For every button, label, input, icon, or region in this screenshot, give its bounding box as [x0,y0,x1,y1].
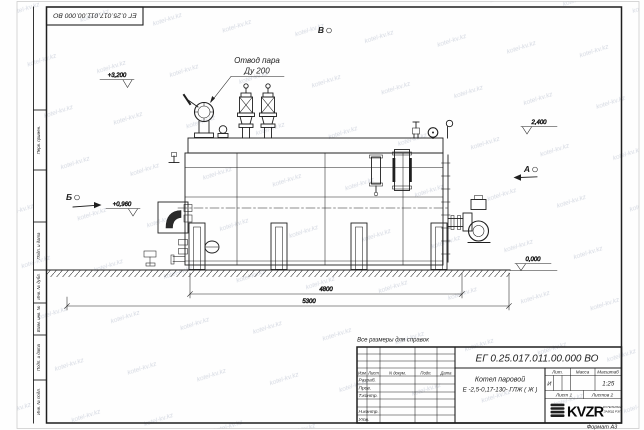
row-label-nkontr: Н.контр. [359,409,379,415]
mass-header: Масса [576,370,590,375]
sidebar-label-perv-primen: Перв. примен. [36,126,41,155]
row-label-razrab: Разраб. [359,378,376,384]
sidebar-label-inv-podl: Инв. № подл. [36,388,41,415]
dim-label-4800: 4800 [319,287,333,293]
sidebar-label-podp-data-1: Подп. и дата [36,232,41,260]
sidebar-label-podp-data-2: Подп. и дата [36,343,41,371]
format-note: Формат А3 [587,425,618,430]
scale-header: Масштаб [597,370,619,375]
ground-line [47,270,557,277]
boiler-assembly-drawing: kotel-kv.kz kotel-kv.kz ЕГ 0.25.017.011.… [0,0,644,430]
row-label-utv: Утв. [359,417,370,423]
drawing-sheet: kotel-kv.kz kotel-kv.kz ЕГ 0.25.017.011.… [0,0,644,430]
view-letter: В [318,25,324,35]
col-header-doc: N докум. [389,371,406,376]
logo-text: KVZR [567,405,605,421]
elevation-label: +0,960 [113,202,132,208]
col-header-list: Лист [367,371,379,376]
elevation-label: +3,200 [108,73,127,79]
col-header-izm: Изм [358,371,366,376]
title-designation: ЕГ 0.25.017.011.00.000 ВО [476,354,599,365]
sheets-total: Листов 2 [591,393,614,399]
sheet-number: Лист 1 [555,393,573,399]
reference-note: Все размеры для справок [357,338,430,344]
top-stamp-designation: ЕГ 0.25.017.011.00.000 ВО [53,12,137,19]
callout-line2: Ду 200 [243,67,270,76]
logo-caption-line1: КОТЕЛЬНЫЙ [603,405,623,409]
elevation-label: 2,400 [530,120,547,126]
callout-line1: Отвод пара [234,56,280,65]
logo-caption-line2: ЗАВОД РЭП [604,410,623,414]
section-letter: А [523,164,530,174]
row-label-tkontr: Т.контр. [359,393,378,399]
col-header-date: Дата [439,371,452,376]
sidebar-label-vzam-inv: Взам. инв. № [36,305,41,332]
scale-value: 1:25 [602,381,615,388]
sidebar-label-inv-dubl: Инв. № дубл. [36,273,41,299]
elevation-label: 0,000 [525,257,541,263]
lit-header: Лит. [551,370,563,375]
row-label-prov: Пров. [359,386,372,392]
watermark-layer [17,1,639,429]
product-name-line1: Котел паровой [475,376,525,384]
dim-label-5300: 5300 [302,299,316,305]
product-name-line2: Е -2,5-0,17-130- ГЛЖ ( Ж ) [463,387,538,394]
col-header-sign: Подп. [420,371,431,376]
section-letter: Б [66,192,72,202]
